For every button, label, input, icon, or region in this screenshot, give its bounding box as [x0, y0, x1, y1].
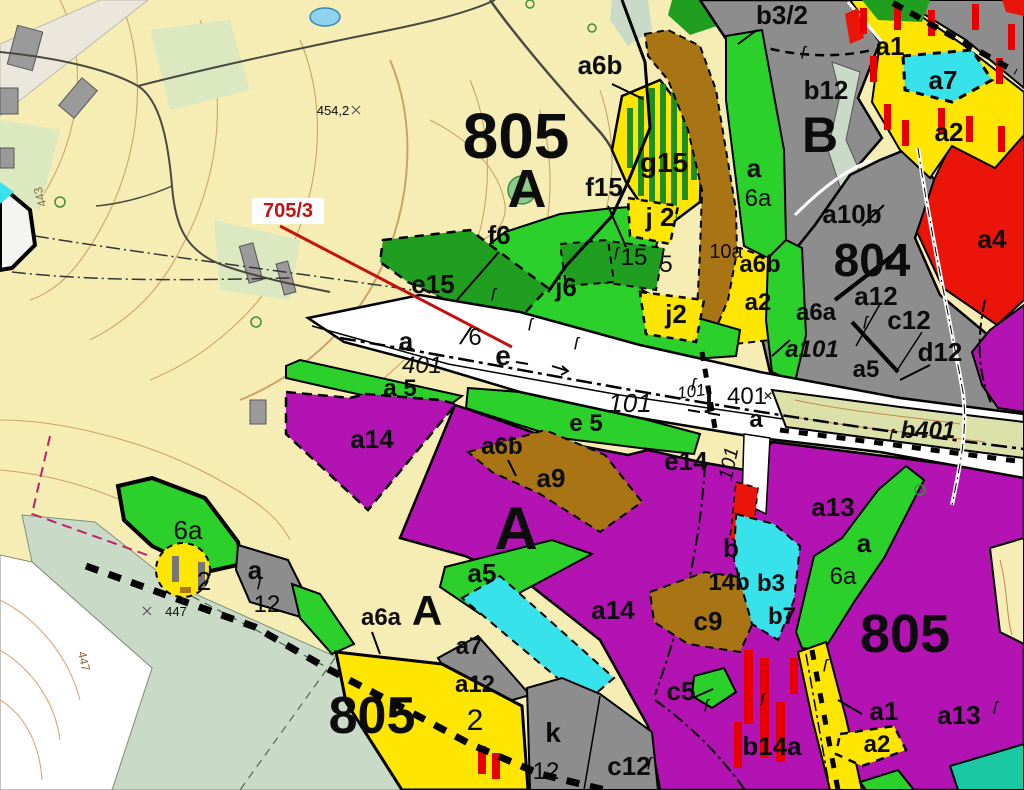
- stand-label: a10b: [822, 199, 881, 229]
- brown-mark: [180, 587, 191, 593]
- stand-label: a7: [456, 633, 483, 660]
- stand-label: 6a: [830, 563, 857, 590]
- stand-label: a13: [811, 492, 854, 522]
- pond: [310, 8, 340, 26]
- stand-label: j: [704, 382, 713, 413]
- stand-label: 2: [467, 704, 484, 737]
- unit-804-label: 804: [834, 234, 911, 286]
- stand-label: a 5: [383, 375, 416, 402]
- stand-label: a5: [468, 558, 497, 588]
- stand-label: a14: [591, 595, 635, 625]
- road-number: 101: [676, 380, 707, 403]
- map-canvas[interactable]: ſ ſ ſ ſ ſ ſ ſ ſ ſ ſ ſ ſ ſ ſ 805 A 804 B …: [0, 0, 1024, 790]
- stand-label: 6a: [745, 185, 772, 212]
- stand-label: a: [248, 555, 263, 585]
- stand-label: a6b: [481, 433, 522, 460]
- stand-label: a6a: [796, 299, 837, 326]
- spot-height: 454,2: [317, 103, 350, 118]
- stand-label: f6: [487, 220, 510, 250]
- stand-label: a7: [929, 65, 958, 95]
- stand-label: e 5: [569, 410, 602, 437]
- building: [250, 400, 266, 424]
- stand-label: j6: [554, 272, 577, 302]
- stand-label: g15: [640, 147, 688, 178]
- stand-label: 2: [197, 566, 211, 596]
- stand-label: 14b: [708, 569, 749, 596]
- stand-label: a101: [785, 336, 838, 363]
- stand-label: e14: [664, 446, 708, 476]
- stand-label: b12: [804, 75, 849, 105]
- stand-label: f15: [585, 172, 623, 202]
- stand-label: 6a: [174, 515, 203, 545]
- unit-805-br-label: 805: [860, 604, 950, 664]
- stand-label: a2: [864, 731, 891, 758]
- unit-A-label: A: [508, 159, 547, 219]
- cross-symbol: ✕: [763, 389, 773, 403]
- unit-A-bl-label: A: [412, 587, 442, 634]
- stand-label: 15: [621, 244, 648, 271]
- stand-label: a5: [853, 356, 880, 383]
- stand-label: b: [723, 533, 739, 563]
- unit-805-bl-label: 805: [329, 687, 416, 745]
- stand-label: a12: [455, 671, 495, 698]
- stand-label: a: [857, 528, 872, 558]
- stand-label: 12: [254, 591, 281, 618]
- stand-label: a6b: [578, 50, 623, 80]
- stand-label: e15: [411, 269, 454, 299]
- spot-height: 447: [165, 604, 187, 619]
- stand-label: c12: [887, 305, 930, 335]
- stand-label: c12: [607, 751, 650, 781]
- stand-label: a14: [350, 424, 394, 454]
- stand-label: k: [545, 717, 561, 748]
- stand-label: a4: [978, 224, 1007, 254]
- stand-label: a6b: [739, 251, 780, 278]
- stand-label: j 2: [645, 202, 675, 232]
- stand-label: 6: [468, 324, 481, 351]
- stand-label: b3: [757, 570, 785, 597]
- stand-label: a: [747, 153, 762, 183]
- road-number: 101: [608, 388, 651, 418]
- parcel-callout-705-3: 705/3: [263, 200, 313, 222]
- unit-A-mid-label: A: [494, 495, 537, 562]
- stand-label: b7: [768, 603, 796, 630]
- road-label: b401: [901, 417, 956, 444]
- stand-label: a9: [537, 463, 566, 493]
- stand-label: b14a: [742, 731, 802, 761]
- building: [0, 88, 18, 114]
- stand-label: 12: [533, 758, 560, 785]
- stand-label: a2: [745, 289, 772, 316]
- stand-label: a1: [876, 31, 905, 61]
- stand-label: d12: [918, 337, 963, 367]
- building: [0, 148, 14, 168]
- stand-label: e: [495, 340, 511, 371]
- stand-label: c5: [667, 676, 696, 706]
- stand-label: a1: [870, 696, 899, 726]
- gray-bar: [172, 556, 179, 582]
- stand-label: a2: [935, 117, 964, 147]
- stand-label: a13: [937, 700, 980, 730]
- stand-label: c9: [694, 606, 723, 636]
- stand-label: b3/2: [756, 0, 808, 30]
- stand-label: 5: [659, 251, 672, 278]
- stand-label: a: [749, 406, 763, 433]
- map-viewport: ſ ſ ſ ſ ſ ſ ſ ſ ſ ſ ſ ſ ſ ſ 805 A 804 B …: [0, 0, 1024, 790]
- unit-B-label: B: [802, 107, 838, 163]
- stand-label: a6a: [361, 604, 402, 631]
- stand-label: j2: [664, 299, 687, 329]
